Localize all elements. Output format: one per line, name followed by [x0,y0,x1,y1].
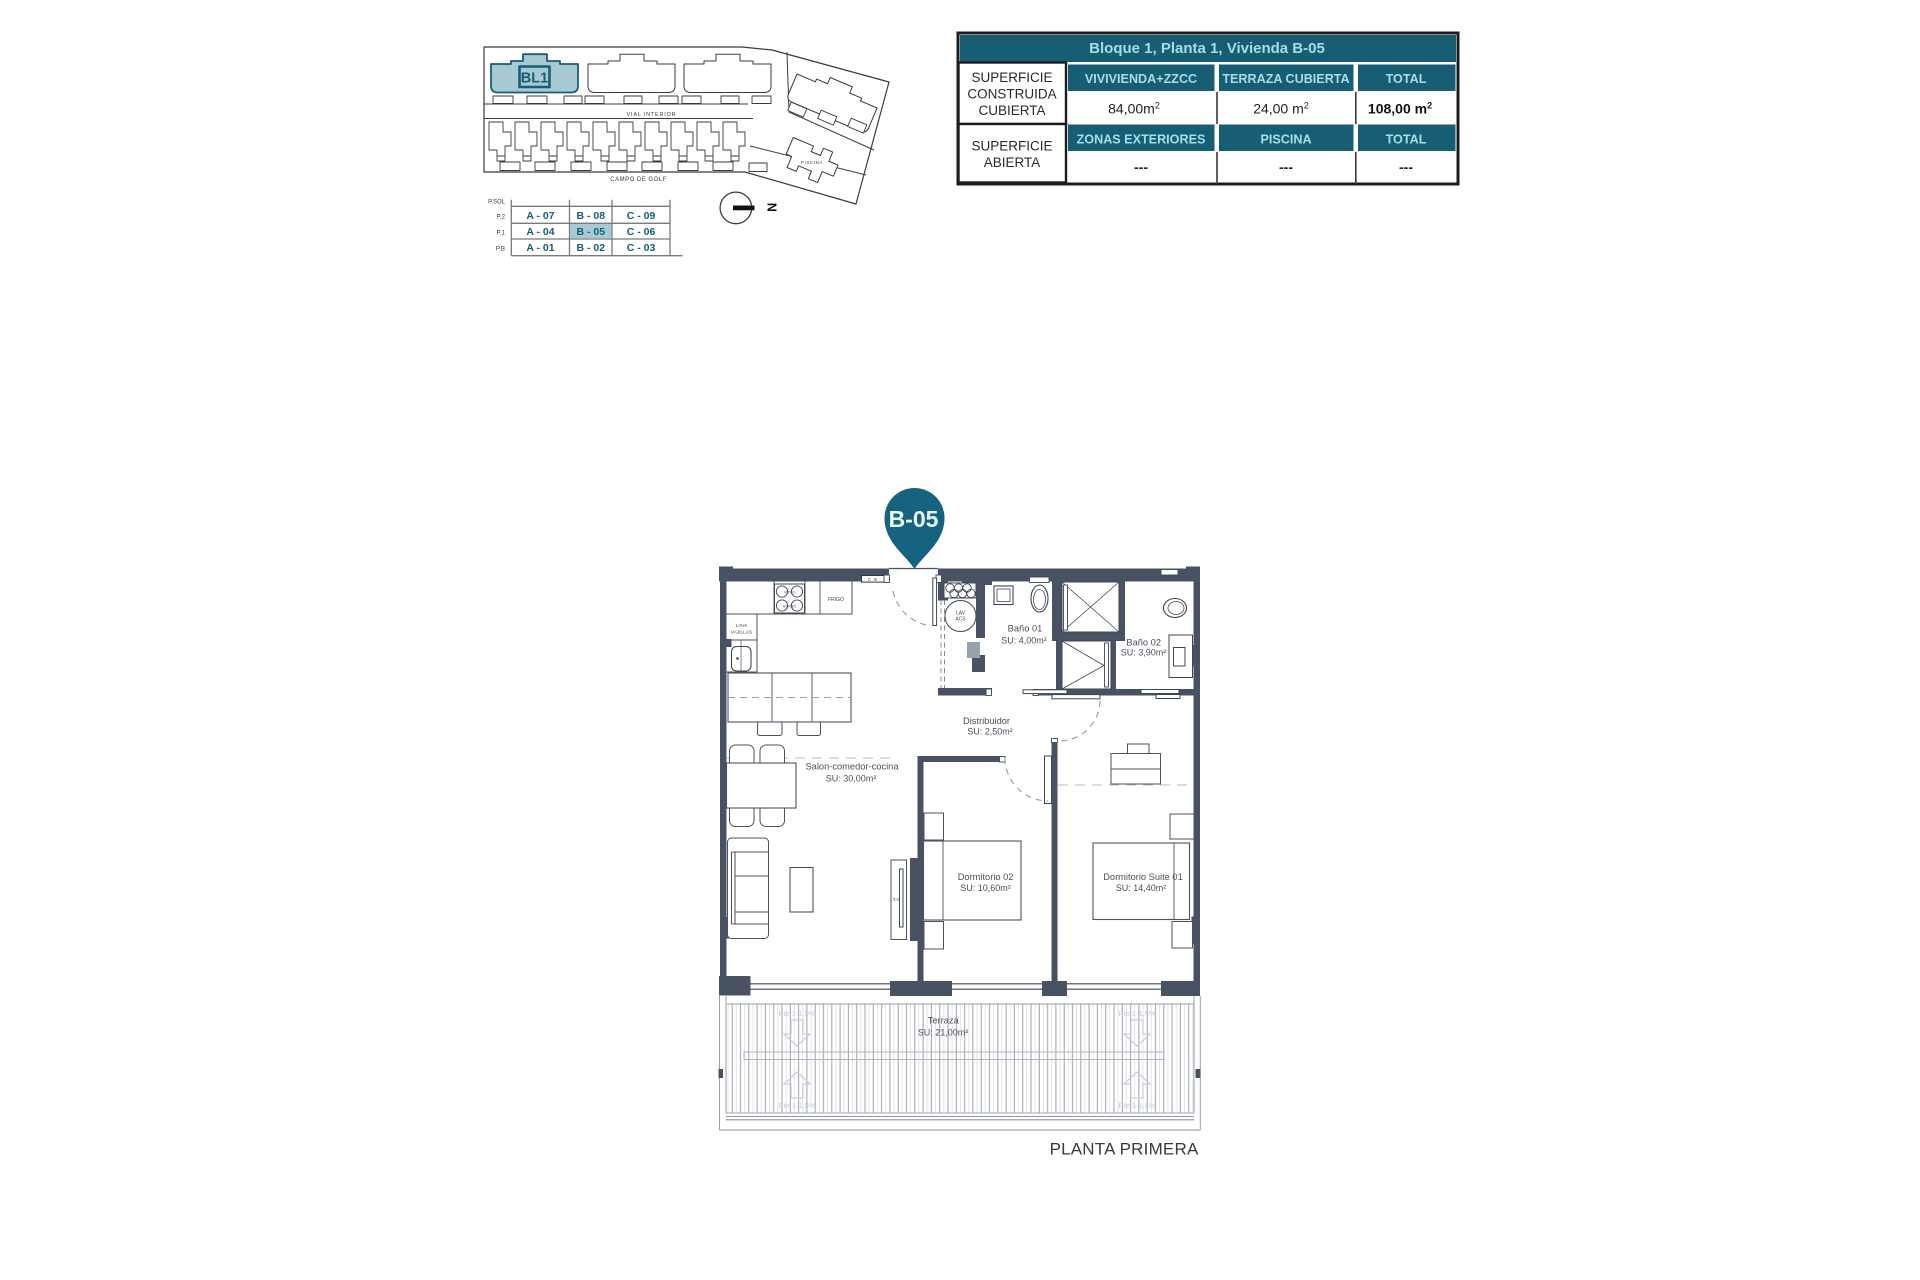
svg-text:24,00 m2: 24,00 m2 [1253,101,1309,117]
svg-text:Terraza: Terraza [928,1016,960,1026]
svg-text:A - 07: A - 07 [526,210,554,222]
svg-text:VIAL INTERIOR: VIAL INTERIOR [627,112,677,118]
svg-text:FRIGO: FRIGO [828,597,844,603]
svg-text:PISCINA: PISCINA [1260,133,1311,147]
svg-text:P.B: P.B [496,246,505,253]
svg-text:Pte 1-1,5%: Pte 1-1,5% [778,1009,815,1018]
svg-text:Pte 1-1,5%: Pte 1-1,5% [778,1101,815,1110]
svg-text:ACS: ACS [955,617,966,623]
svg-text:HORNO: HORNO [783,605,797,609]
svg-text:SU: 14,40m²: SU: 14,40m² [1116,883,1167,893]
svg-text:C - 03: C - 03 [627,242,656,254]
svg-text:B - 02: B - 02 [577,242,606,254]
svg-text:TERRAZA CUBIERTA: TERRAZA CUBIERTA [1222,72,1349,86]
svg-text:SU: 4,00m²: SU: 4,00m² [1001,636,1047,646]
svg-text:P.1: P.1 [497,230,506,237]
svg-text:SU: 2,50m²: SU: 2,50m² [967,727,1013,737]
svg-text:84,00m2: 84,00m2 [1108,101,1160,117]
svg-text:SUPERFICIE: SUPERFICIE [971,139,1052,154]
svg-text:SU: 30,00m²: SU: 30,00m² [826,773,877,783]
svg-text:Salon-comedor-cocina: Salon-comedor-cocina [805,762,899,772]
svg-text:C E: C E [868,577,879,582]
svg-text:CUBIERTA: CUBIERTA [978,103,1045,118]
svg-text:Pte 1-1,5%: Pte 1-1,5% [1118,1101,1155,1110]
svg-text:---: --- [1399,159,1413,175]
svg-text:A - 01: A - 01 [526,242,554,254]
svg-text:TOTAL: TOTAL [1386,72,1427,86]
svg-text:Dormitorio 02: Dormitorio 02 [958,872,1014,882]
svg-text:VIVIVIENDA+ZZCC: VIVIVIENDA+ZZCC [1085,72,1197,86]
svg-text:C - 09: C - 09 [627,210,656,222]
svg-text:P.2: P.2 [497,214,506,221]
svg-text:LAVA: LAVA [736,623,748,629]
svg-text:TOTAL: TOTAL [1386,133,1427,147]
svg-text:SU: 10,60m²: SU: 10,60m² [960,883,1011,893]
svg-text:C - 06: C - 06 [627,226,656,238]
svg-text:B - 08: B - 08 [577,210,606,222]
svg-text:---: --- [1134,159,1148,175]
svg-text:VAJILLAS: VAJILLAS [731,630,753,636]
svg-text:ABIERTA: ABIERTA [984,155,1041,170]
svg-text:CONSTRUIDA: CONSTRUIDA [967,87,1056,102]
svg-text:Baño 01: Baño 01 [1008,624,1043,634]
svg-text:B - 05: B - 05 [577,226,606,238]
svg-text:108,00 m2: 108,00 m2 [1368,101,1432,117]
svg-text:Bloque 1, Planta 1, Vivienda B: Bloque 1, Planta 1, Vivienda B-05 [1089,40,1325,57]
svg-text:SUPERFICIE: SUPERFICIE [971,70,1052,85]
svg-text:PLANTA PRIMERA: PLANTA PRIMERA [1050,1140,1199,1159]
svg-text:CAMPO DE GOLF: CAMPO DE GOLF [610,177,667,183]
svg-text:Baño 02: Baño 02 [1126,638,1161,648]
svg-text:Distribuidor: Distribuidor [963,716,1010,726]
svg-text:N: N [765,203,779,212]
svg-text:---: --- [1279,159,1293,175]
svg-text:SU: 21,00m²: SU: 21,00m² [918,1028,969,1038]
svg-text:Pte 1-1,5%: Pte 1-1,5% [1118,1009,1155,1018]
svg-text:B-05: B-05 [889,506,939,532]
svg-text:VITRO: VITRO [784,591,795,595]
svg-text:PISCINA: PISCINA [801,160,823,165]
svg-text:P.SOL: P.SOL [488,200,506,206]
svg-text:A - 04: A - 04 [526,226,554,238]
svg-text:Dormitorio Suite 01: Dormitorio Suite 01 [1103,872,1183,882]
svg-text:BL1: BL1 [521,71,548,87]
svg-text:SU: 3,90m²: SU: 3,90m² [1121,648,1167,658]
svg-text:T.V: T.V [893,897,899,902]
svg-text:ZONAS EXTERIORES: ZONAS EXTERIORES [1077,133,1206,147]
